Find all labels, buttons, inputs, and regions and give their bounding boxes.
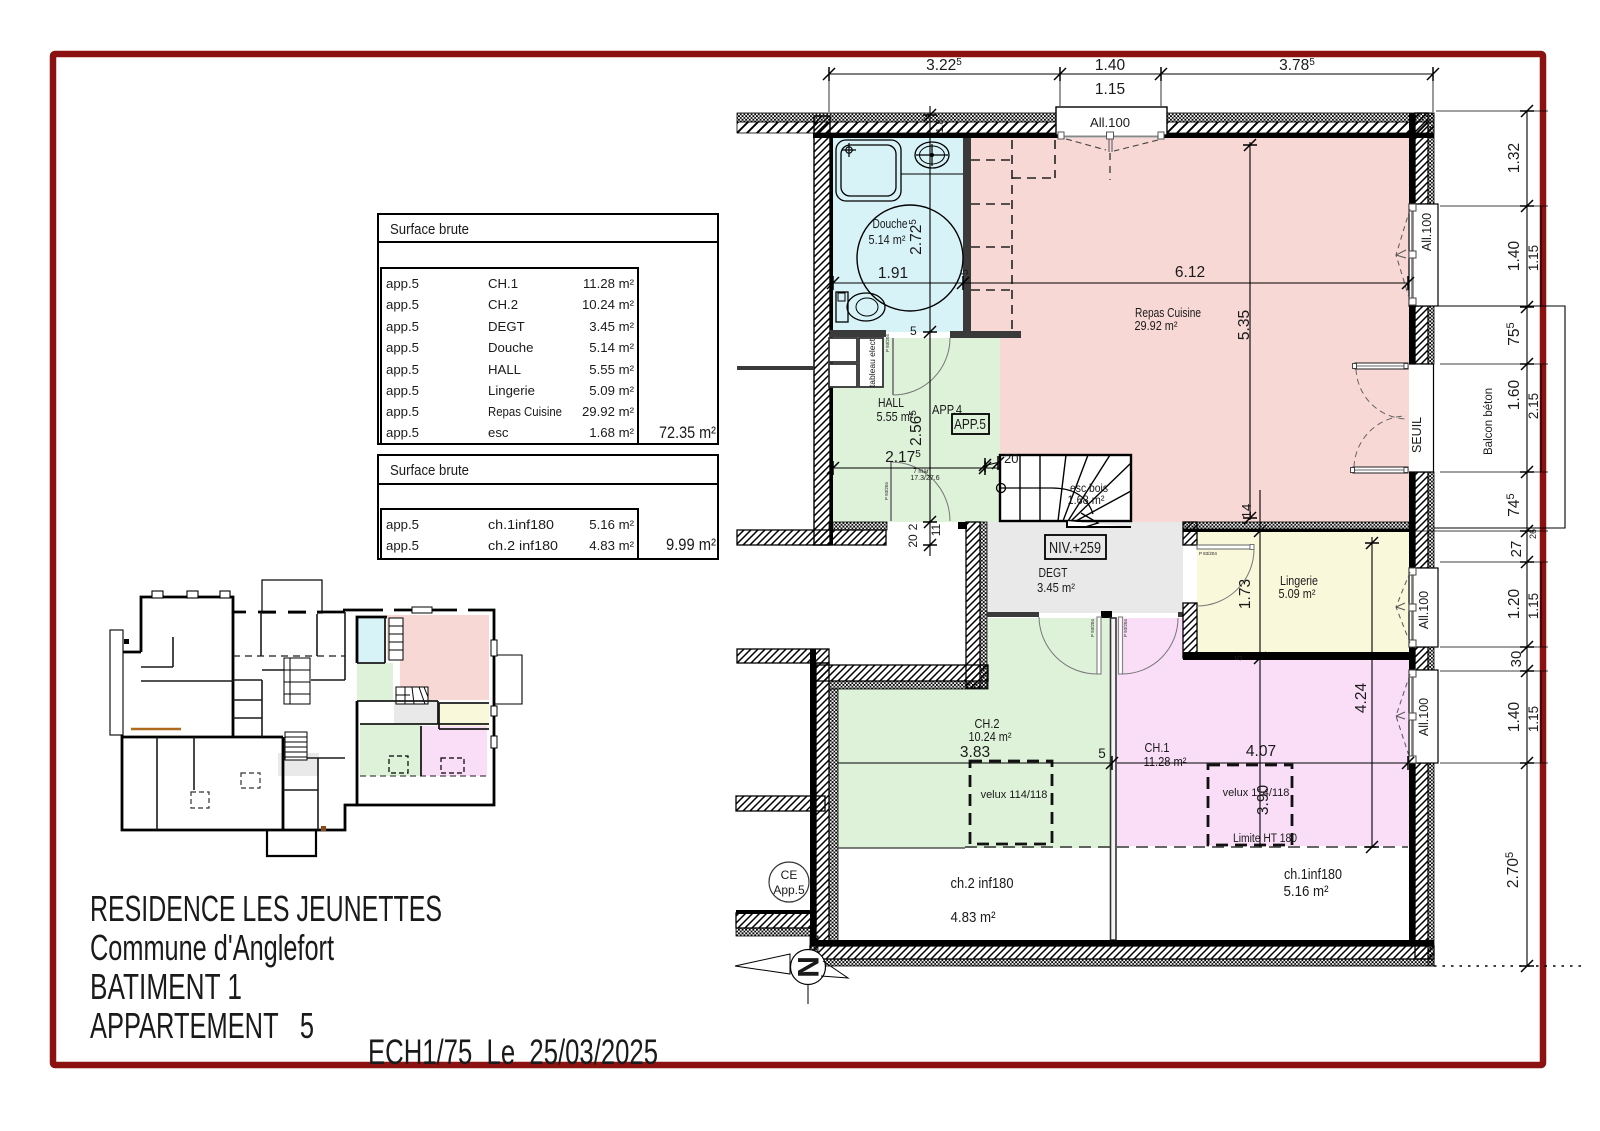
svg-text:ch.2 inf180: ch.2 inf180 [488,538,558,553]
svg-text:Douche: Douche [873,217,908,231]
svg-text:6.12: 6.12 [1175,264,1205,281]
svg-text:1.73: 1.73 [1237,579,1254,609]
svg-text:5.16 m²: 5.16 m² [589,517,634,532]
svg-text:ch.2 inf180: ch.2 inf180 [951,875,1014,892]
svg-text:29.92 m²: 29.92 m² [582,404,635,419]
svg-text:Commune d'Anglefort: Commune d'Anglefort [90,927,334,968]
svg-text:Repas Cuisine: Repas Cuisine [1135,306,1201,320]
svg-text:1.20: 1.20 [1506,589,1523,620]
svg-text:RESIDENCE LES JEUNETTES: RESIDENCE LES JEUNETTES [90,888,442,929]
svg-text:5.35: 5.35 [1236,310,1253,340]
svg-text:26: 26 [1528,529,1538,539]
svg-text:Lingerie: Lingerie [488,383,535,398]
svg-text:1.15: 1.15 [1526,593,1541,619]
svg-text:DEGT: DEGT [1039,565,1068,580]
svg-text:CH.1: CH.1 [1145,741,1170,755]
svg-text:72.35 m²: 72.35 m² [659,423,716,442]
svg-text:9.99 m²: 9.99 m² [666,535,716,554]
svg-text:app.5: app.5 [386,297,419,312]
svg-text:10.24 m²: 10.24 m² [969,730,1012,744]
svg-text:5: 5 [910,324,917,338]
svg-text:1.68 m²: 1.68 m² [1068,493,1105,507]
svg-text:P 93/204: P 93/204 [885,334,890,352]
svg-text:tableau elect: tableau elect [867,338,877,387]
svg-text:app.5: app.5 [386,276,419,291]
svg-text:1.91: 1.91 [878,265,908,282]
svg-text:1.15: 1.15 [1526,245,1541,271]
svg-text:N: N [791,956,824,978]
svg-text:17.3/27.6: 17.3/27.6 [910,475,939,482]
svg-text:1.15: 1.15 [1095,81,1125,98]
svg-text:5: 5 [1234,655,1245,661]
svg-text:27: 27 [1508,541,1525,558]
svg-text:1.68 m²: 1.68 m² [589,425,634,440]
svg-text:1.40: 1.40 [1506,241,1523,272]
svg-text:CH.2: CH.2 [975,717,1000,731]
svg-text:5.09 m²: 5.09 m² [1279,587,1316,601]
svg-text:App.5: App.5 [773,883,805,897]
svg-text:1.40: 1.40 [1506,702,1523,733]
svg-text:ch.1inf180: ch.1inf180 [488,517,554,532]
svg-text:SEUIL: SEUIL [1410,417,1424,453]
svg-text:ch.1inf180: ch.1inf180 [1284,866,1342,883]
svg-text:CH.1: CH.1 [488,276,518,291]
svg-text:All.100: All.100 [1420,213,1434,251]
svg-text:3.45 m²: 3.45 m² [589,319,634,334]
svg-text:Surface brute: Surface brute [390,463,469,479]
svg-text:2: 2 [906,523,920,530]
svg-text:5.09 m²: 5.09 m² [589,383,634,398]
svg-text:HALL: HALL [488,362,521,377]
svg-text:4.83 m²: 4.83 m² [951,909,996,926]
svg-text:3.83: 3.83 [960,744,990,761]
svg-text:All.100: All.100 [1417,591,1431,629]
svg-text:5: 5 [959,269,971,275]
svg-text:11.28 m²: 11.28 m² [1144,755,1187,769]
svg-text:ECH1/75 Le 25/03/2025: ECH1/75 Le 25/03/2025 [368,1033,658,1072]
svg-text:esc: esc [488,425,509,440]
svg-text:29.92 m²: 29.92 m² [1135,319,1178,333]
svg-text:CH.2: CH.2 [488,297,518,312]
svg-text:P 93/204: P 93/204 [1123,619,1128,637]
svg-text:app.5: app.5 [386,425,419,440]
svg-text:velux 114/118: velux 114/118 [981,789,1048,801]
svg-text:P 83/204: P 83/204 [1199,551,1217,556]
svg-text:app.5: app.5 [386,538,419,553]
svg-text:11.28 m²: 11.28 m² [583,276,635,291]
svg-text:app.5: app.5 [386,404,419,419]
svg-text:APPARTEMENT 5: APPARTEMENT 5 [90,1005,314,1046]
svg-text:4.24: 4.24 [1353,683,1370,714]
svg-text:HALL: HALL [878,396,904,410]
svg-text:Limite HT 180: Limite HT 180 [1233,833,1297,845]
svg-text:5.55 m²: 5.55 m² [589,362,634,377]
svg-text:5.14 m²: 5.14 m² [869,233,906,247]
svg-text:5.14 m²: 5.14 m² [589,340,634,355]
svg-text:1.32: 1.32 [1506,143,1523,173]
svg-text:app.5: app.5 [386,319,419,334]
svg-text:P 93/204: P 93/204 [1090,619,1095,637]
svg-text:20: 20 [906,534,920,548]
svg-text:All.100: All.100 [1417,698,1431,736]
svg-text:P 93/204: P 93/204 [884,482,889,500]
svg-text:CE: CE [781,868,798,882]
svg-text:Balcon béton: Balcon béton [1483,388,1495,455]
svg-text:Douche: Douche [488,340,533,355]
svg-text:NIV.+259: NIV.+259 [1049,540,1101,557]
svg-text:app.5: app.5 [386,383,419,398]
svg-text:4.07: 4.07 [1246,743,1276,760]
svg-text:1.60: 1.60 [1506,380,1523,411]
svg-text:APP.5: APP.5 [954,417,986,433]
svg-text:5: 5 [1098,746,1106,761]
svg-text:BATIMENT 1: BATIMENT 1 [90,966,242,1007]
svg-text:1.8: 1.8 [935,119,946,133]
svg-text:1.15: 1.15 [1526,706,1541,732]
svg-text:DEGT: DEGT [488,319,525,334]
svg-text:10.24 m²: 10.24 m² [582,297,635,312]
svg-text:20: 20 [1004,451,1018,466]
svg-text:2.15: 2.15 [1526,393,1541,419]
svg-text:4.83 m²: 4.83 m² [589,538,634,553]
svg-text:1.40: 1.40 [1095,57,1126,74]
svg-text:30: 30 [1508,651,1525,668]
svg-text:Surface brute: Surface brute [390,222,469,238]
svg-text:14: 14 [1239,504,1254,518]
svg-text:3.90: 3.90 [1255,785,1272,816]
svg-text:Repas Cuisine: Repas Cuisine [488,404,562,419]
svg-text:app.5: app.5 [386,517,419,532]
svg-text:5.16 m²: 5.16 m² [1284,883,1329,900]
svg-text:app.5: app.5 [386,340,419,355]
svg-text:app.5: app.5 [386,362,419,377]
svg-text:11: 11 [929,523,943,536]
svg-text:Lingerie: Lingerie [1280,574,1318,588]
svg-text:All.100: All.100 [1090,115,1130,130]
svg-text:3.45 m²: 3.45 m² [1037,580,1076,595]
